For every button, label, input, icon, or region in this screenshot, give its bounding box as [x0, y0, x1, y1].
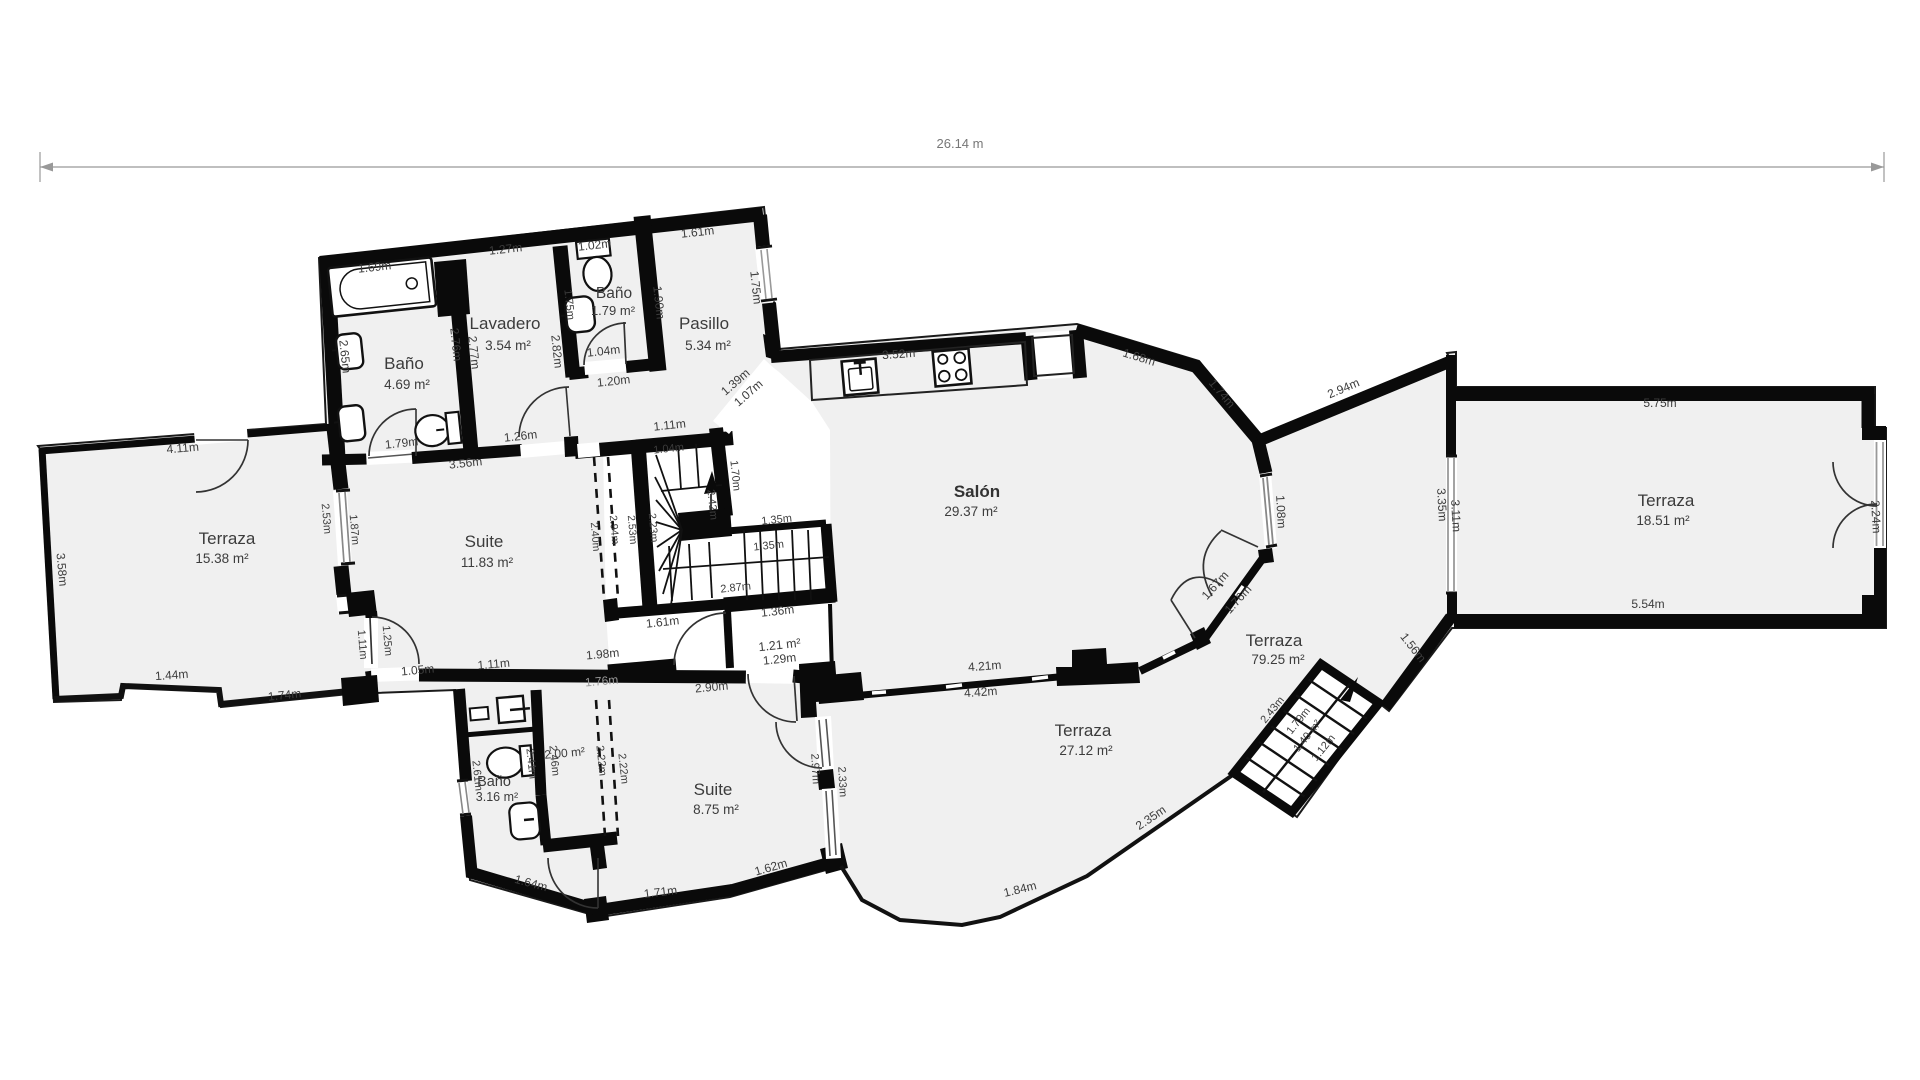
svg-text:3.16 m²: 3.16 m² — [476, 790, 518, 804]
svg-text:2.24m: 2.24m — [1868, 500, 1884, 534]
svg-text:5.54m: 5.54m — [1631, 597, 1664, 611]
svg-text:2.97m: 2.97m — [808, 753, 822, 784]
svg-text:Terraza: Terraza — [1246, 631, 1303, 650]
svg-text:4.69 m²: 4.69 m² — [384, 377, 430, 392]
svg-text:1.76m: 1.76m — [584, 673, 618, 690]
svg-text:Salón: Salón — [954, 482, 1000, 501]
svg-text:79.25 m²: 79.25 m² — [1251, 652, 1305, 667]
svg-text:4.21m: 4.21m — [968, 658, 1002, 674]
svg-text:4.42m: 4.42m — [964, 684, 998, 700]
svg-text:1.05m: 1.05m — [400, 662, 434, 679]
svg-text:5.75m: 5.75m — [1643, 396, 1676, 410]
svg-text:3.58m: 3.58m — [54, 552, 71, 586]
svg-text:3.54 m²: 3.54 m² — [485, 338, 531, 353]
svg-text:Terraza: Terraza — [1055, 721, 1112, 740]
svg-text:Terraza: Terraza — [1638, 491, 1695, 510]
svg-text:2.53m: 2.53m — [625, 515, 640, 545]
svg-text:1.08m: 1.08m — [1273, 495, 1289, 529]
svg-text:Suite: Suite — [465, 532, 504, 551]
svg-text:11.83 m²: 11.83 m² — [461, 555, 514, 570]
svg-text:Pasillo: Pasillo — [679, 314, 729, 333]
svg-text:2.23m: 2.23m — [646, 513, 661, 543]
svg-text:3.52m: 3.52m — [882, 346, 916, 362]
svg-text:Lavadero: Lavadero — [470, 314, 541, 333]
svg-text:3.35m: 3.35m — [1434, 488, 1450, 522]
svg-text:1.44m: 1.44m — [155, 667, 189, 683]
svg-text:1.98m: 1.98m — [585, 646, 619, 663]
svg-text:2.33m: 2.33m — [835, 766, 849, 797]
svg-text:29.37 m²: 29.37 m² — [944, 504, 998, 519]
svg-text:1.79 m²: 1.79 m² — [591, 303, 636, 318]
svg-text:2.40m: 2.40m — [588, 522, 603, 552]
svg-text:4.11m: 4.11m — [166, 440, 200, 457]
svg-text:1.11m: 1.11m — [477, 656, 511, 673]
svg-text:2.94m: 2.94m — [607, 515, 622, 545]
svg-text:5.34 m²: 5.34 m² — [685, 338, 731, 353]
svg-text:18.51 m²: 18.51 m² — [1636, 513, 1690, 528]
svg-text:Baño: Baño — [596, 285, 632, 302]
svg-text:26.14 m: 26.14 m — [937, 136, 984, 151]
svg-text:Baño: Baño — [384, 354, 424, 373]
svg-text:Terraza: Terraza — [199, 529, 256, 548]
svg-text:27.12 m²: 27.12 m² — [1059, 743, 1113, 758]
svg-text:15.38 m²: 15.38 m² — [195, 551, 249, 566]
svg-text:8.75 m²: 8.75 m² — [693, 802, 739, 817]
svg-text:2.90m: 2.90m — [694, 679, 728, 696]
svg-text:3.11m: 3.11m — [1448, 499, 1464, 532]
svg-text:Suite: Suite — [694, 780, 733, 799]
